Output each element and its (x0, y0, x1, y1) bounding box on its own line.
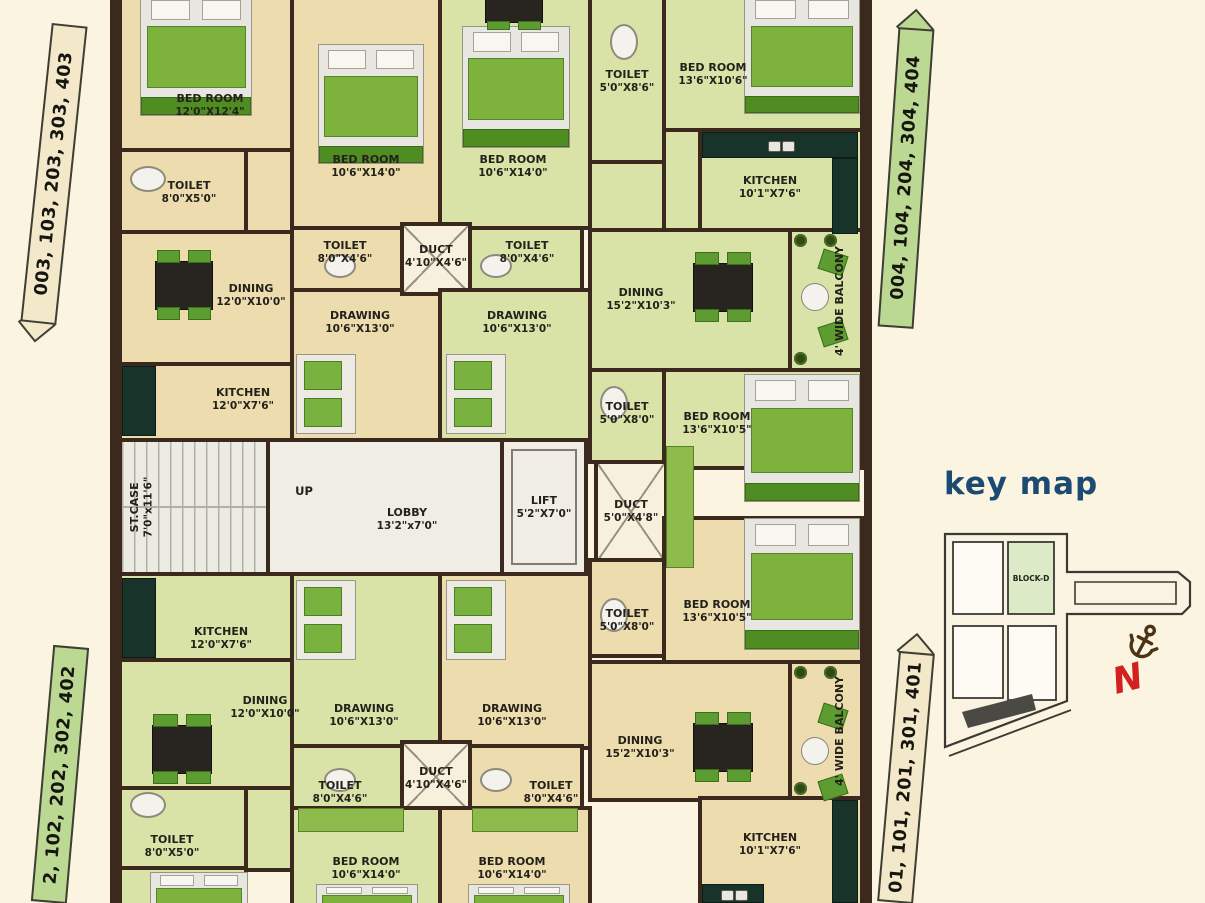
unit-label-box: 004, 104, 204, 304, 404 (878, 27, 935, 329)
unit-label: 004, 104, 204, 304, 404 (878, 27, 935, 329)
unit-number-labels-layer: 003, 103, 203, 303, 403004, 104, 204, 30… (0, 0, 1205, 903)
unit-label-box: 2, 102, 202, 302, 402 (31, 645, 89, 903)
floorplan-page: BED ROOM12'0"X12'4"TOILET8'0"X5'0"BED RO… (0, 0, 1205, 903)
unit-label: 003, 103, 203, 303, 403 (20, 23, 87, 325)
unit-numbers: 004, 104, 204, 304, 404 (887, 55, 924, 301)
unit-numbers: 01, 101, 201, 301, 401 (886, 661, 926, 894)
unit-label-box: 003, 103, 203, 303, 403 (20, 23, 87, 325)
unit-numbers: 003, 103, 203, 303, 403 (31, 51, 77, 297)
unit-label: 01, 101, 201, 301, 401 (877, 651, 935, 903)
unit-label-box: 01, 101, 201, 301, 401 (877, 651, 935, 903)
unit-numbers: 2, 102, 202, 302, 402 (40, 664, 79, 885)
unit-label: 2, 102, 202, 302, 402 (31, 645, 89, 903)
